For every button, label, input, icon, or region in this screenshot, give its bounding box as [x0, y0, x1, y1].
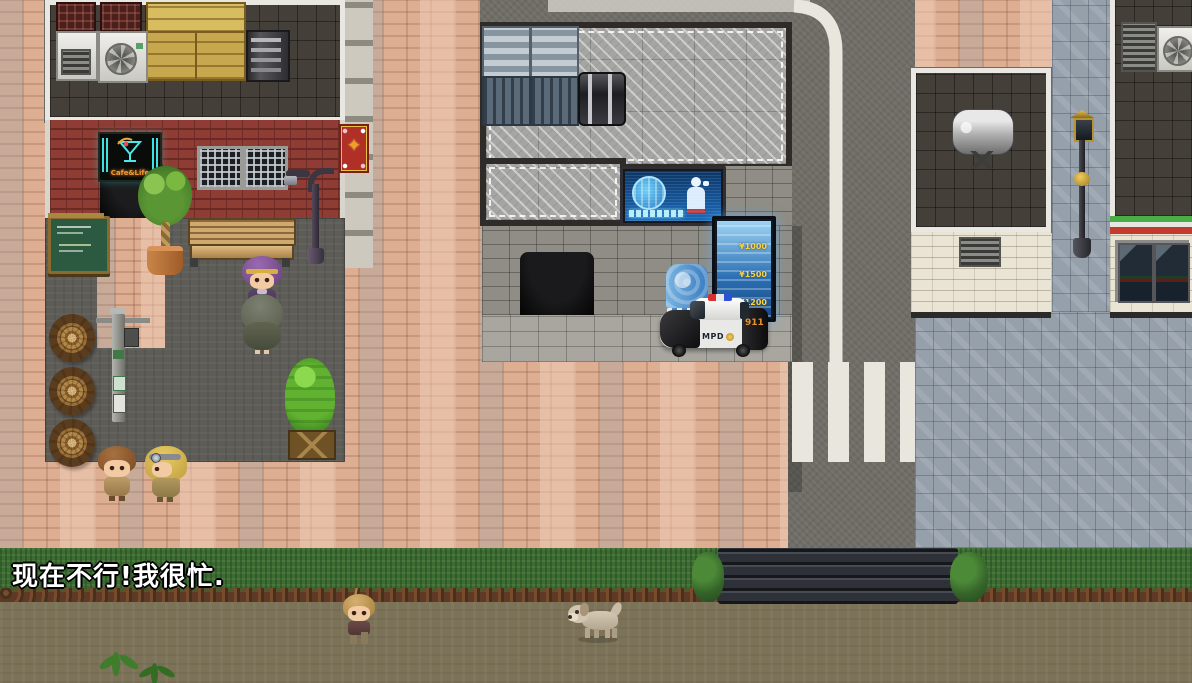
ac-unit	[56, 31, 98, 81]
rooftop-machine	[246, 30, 290, 82]
rooftop-crates	[146, 31, 197, 81]
fan-icon	[105, 43, 137, 75]
antique-lamp	[1066, 110, 1098, 262]
store-windows	[1115, 240, 1189, 302]
barrel	[49, 419, 95, 467]
barred-window	[197, 146, 243, 190]
ac-label	[136, 43, 143, 49]
ac-unit	[1157, 26, 1192, 72]
star-icon: ✦	[339, 136, 369, 156]
store-wall	[1110, 234, 1192, 318]
right-building-wall	[911, 232, 1051, 318]
warehouse-roof-ext	[480, 158, 626, 226]
game-viewport: Cafe&Life ✦	[0, 0, 1192, 683]
barred-window	[243, 146, 288, 190]
rooftop-crates	[195, 31, 246, 81]
cargo-container	[530, 26, 579, 80]
road-edge-line	[788, 0, 915, 362]
cargo-container	[482, 26, 531, 80]
crosswalk	[788, 362, 915, 462]
police-door-label: MPD	[702, 332, 724, 341]
npc-boy[interactable]	[93, 446, 141, 506]
warehouse-door[interactable]	[520, 252, 594, 315]
light-curb-strip	[548, 0, 810, 12]
tank-legs	[956, 151, 1008, 169]
police-car[interactable]: MPD 911	[660, 296, 768, 358]
kiosk-price-1: ¥1000	[739, 243, 767, 251]
utility-pole	[96, 306, 152, 426]
fan-icon	[1163, 36, 1192, 66]
plant-leaves	[138, 166, 192, 226]
police-lightbar	[708, 294, 732, 301]
kiosk-price-2: ¥1500	[739, 271, 767, 279]
news-screen	[620, 166, 726, 226]
right-building-roof	[911, 68, 1051, 232]
wall-tapestry: ✦	[339, 124, 369, 173]
cafe-roof	[45, 0, 345, 122]
police-rear-label: 911	[745, 318, 764, 328]
potted-plant	[136, 166, 194, 270]
npc-walker[interactable]	[337, 588, 381, 648]
machine-drum	[578, 72, 626, 126]
ac-grille	[61, 49, 91, 75]
stone-steps[interactable]	[718, 548, 958, 604]
rooftop-crates	[146, 2, 246, 34]
fern-plant	[136, 660, 186, 683]
neon-tube-left	[102, 138, 108, 172]
roof-vent	[1121, 22, 1157, 72]
ac-unit	[98, 31, 148, 83]
police-badge-icon	[726, 333, 734, 341]
chimney	[56, 2, 96, 32]
cargo-container-door	[530, 76, 579, 126]
menu-board[interactable]	[48, 216, 110, 274]
npc-cloaked-figure[interactable]	[238, 294, 286, 358]
planter-tree	[282, 358, 338, 458]
bush-left	[692, 552, 724, 602]
npc-goggles-kid[interactable]	[142, 446, 192, 506]
cargo-container-door	[482, 76, 531, 126]
dog[interactable]	[568, 602, 624, 646]
barrel	[49, 367, 95, 415]
chimney	[100, 2, 142, 32]
cobble-sidewalk	[915, 312, 1192, 548]
cocktail-glass-icon	[114, 136, 146, 164]
dialog-text: 现在不行!我很忙.	[12, 556, 225, 593]
street-lamp	[284, 168, 328, 268]
store-roof	[1110, 0, 1192, 216]
bush-right	[950, 552, 988, 602]
wall-vent	[959, 237, 1001, 267]
terracotta-pot	[147, 246, 183, 275]
store-awning	[1110, 216, 1192, 234]
barrel	[49, 314, 95, 362]
rooftop-tank	[952, 109, 1014, 155]
